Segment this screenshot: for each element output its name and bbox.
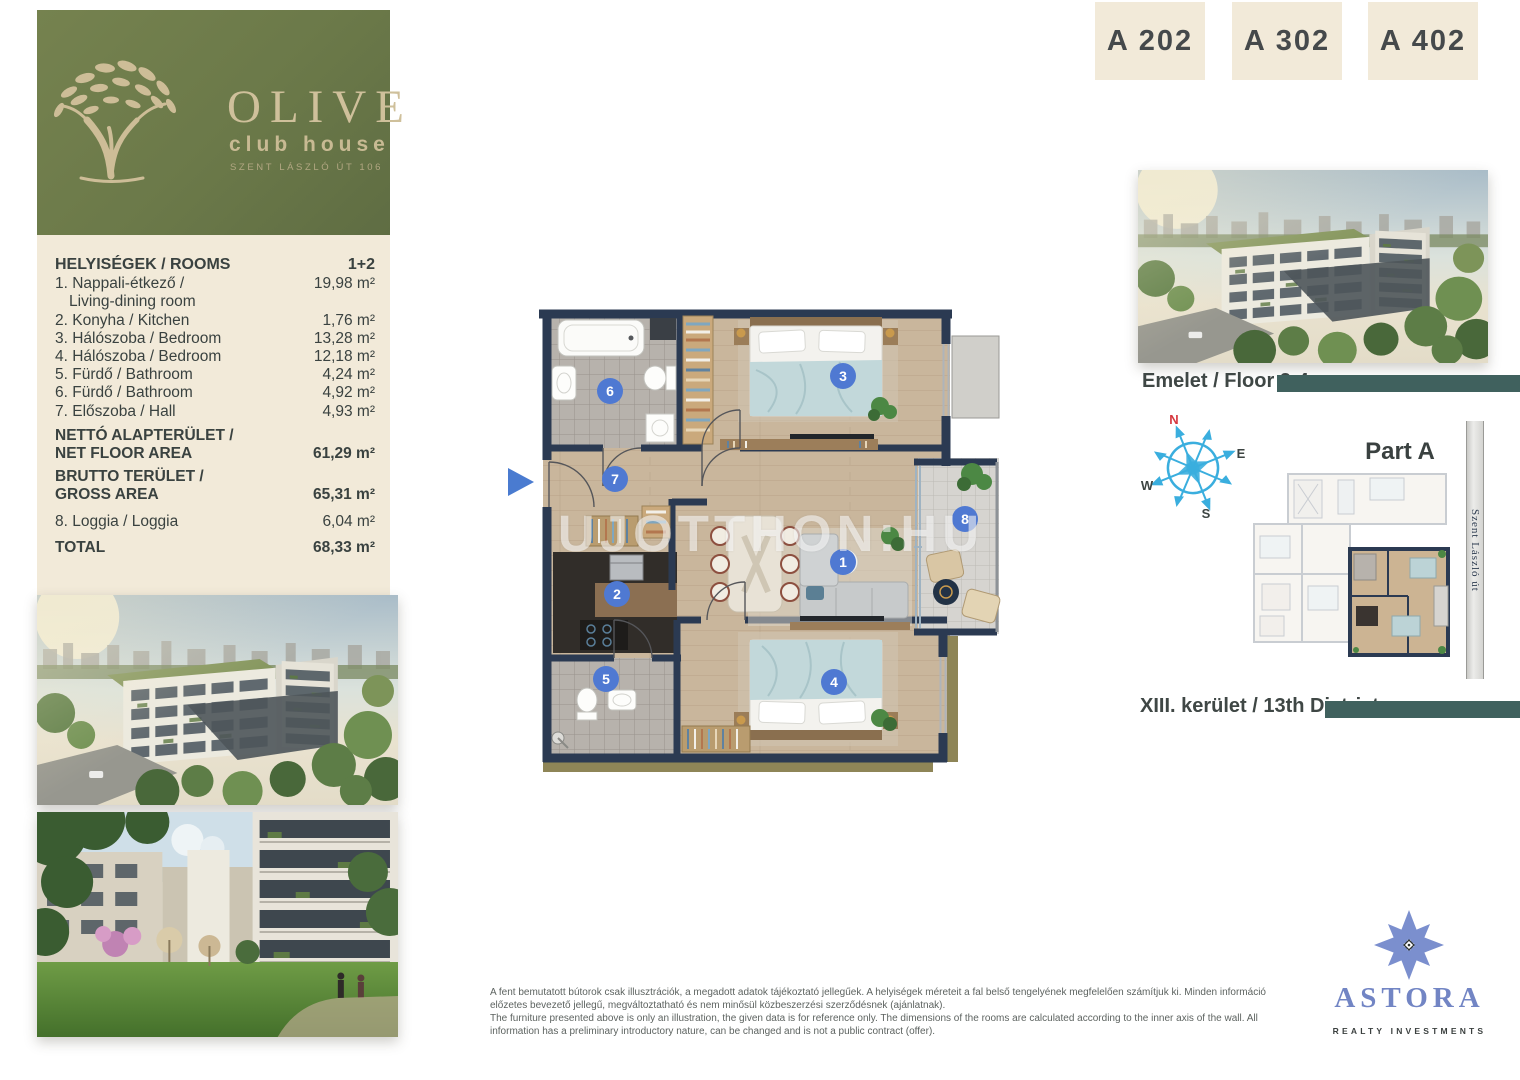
courtyard-photo <box>37 812 398 1037</box>
svg-text:3: 3 <box>839 368 847 384</box>
disclaimer-hu: A fent bemutatott bútorok csak illusztrá… <box>490 986 1282 1012</box>
terrace <box>952 336 999 418</box>
mini-plan-highlight <box>1350 549 1448 655</box>
compass-icon: N E W S <box>1136 408 1254 522</box>
room-row: 3. Hálószoba / Bedroom13,28 m² <box>55 330 375 348</box>
street-label: Szent László út <box>1469 509 1481 592</box>
disclaimer-en: The furniture presented above is only an… <box>490 1012 1282 1038</box>
svg-text:4: 4 <box>830 674 838 690</box>
room-table-header: HELYISÉGEK / ROOMS 1+2 <box>55 256 375 274</box>
room-row: 1. Nappali-étkező / Living-dining room 1… <box>55 275 375 311</box>
svg-text:7: 7 <box>611 471 619 487</box>
brand-tagline: REALTY INVESTMENTS <box>1322 1026 1497 1036</box>
room-row: 7. Előszoba / Hall4,93 m² <box>55 403 375 421</box>
room-row: 6. Fürdő / Bathroom4,92 m² <box>55 384 375 402</box>
room-row: 5. Fürdő / Bathroom4,24 m² <box>55 366 375 384</box>
loggia-row: 8. Loggia / Loggia6,04 m² <box>55 513 375 531</box>
total-row: TOTAL68,33 m² <box>55 539 375 557</box>
unit-tab-a302[interactable]: A 302 <box>1232 2 1342 80</box>
svg-text:5: 5 <box>602 671 610 687</box>
street-bar: Szent László út <box>1466 421 1484 679</box>
room-row: 2. Konyha / Kitchen1,76 m² <box>55 312 375 330</box>
svg-text:W: W <box>1141 478 1154 493</box>
logo-title: OLIVE <box>227 80 392 134</box>
logo-subtitle: club house <box>229 133 390 157</box>
disclaimer: A fent bemutatott bútorok csak illusztrá… <box>490 986 1282 1038</box>
watermark: UJOTTHON:HU <box>536 504 1006 563</box>
svg-text:2: 2 <box>613 586 621 602</box>
divider-bar <box>1325 701 1520 718</box>
logo-panel: OLIVE club house SZENT LÁSZLÓ ÚT 106 <box>37 10 390 235</box>
building-aerial-photo <box>37 595 398 805</box>
entrance-arrow-icon <box>508 468 534 496</box>
brochure-page: OLIVE club house SZENT LÁSZLÓ ÚT 106 HEL… <box>0 0 1520 1080</box>
svg-text:S: S <box>1202 506 1211 521</box>
mini-plan <box>1246 466 1461 666</box>
brand-name: ASTORA <box>1322 982 1497 1015</box>
room-table: HELYISÉGEK / ROOMS 1+2 1. Nappali-étkező… <box>55 256 375 557</box>
wardrobe-closet <box>683 316 713 444</box>
svg-text:E: E <box>1237 446 1246 461</box>
olive-tree-icon <box>45 48 190 183</box>
room-row: 4. Hálószoba / Bedroom12,18 m² <box>55 348 375 366</box>
logo-address: SZENT LÁSZLÓ ÚT 106 <box>230 162 383 173</box>
exterior-edge-bottom <box>543 762 933 772</box>
gross-area-row: BRUTTO TERÜLET /GROSS AREA 65,31 m² <box>55 468 375 504</box>
building-aerial-photo-right <box>1138 170 1488 363</box>
svg-text:6: 6 <box>606 383 614 399</box>
astora-star-icon <box>1374 910 1444 980</box>
net-area-row: NETTÓ ALAPTERÜLET /NET FLOOR AREA 61,29 … <box>55 427 375 463</box>
part-label: Part A <box>1330 438 1470 466</box>
svg-text:N: N <box>1169 412 1178 427</box>
unit-tab-a202[interactable]: A 202 <box>1095 2 1205 80</box>
unit-tab-a402[interactable]: A 402 <box>1368 2 1478 80</box>
divider-bar <box>1277 375 1520 392</box>
exterior-edge-right <box>947 636 958 762</box>
